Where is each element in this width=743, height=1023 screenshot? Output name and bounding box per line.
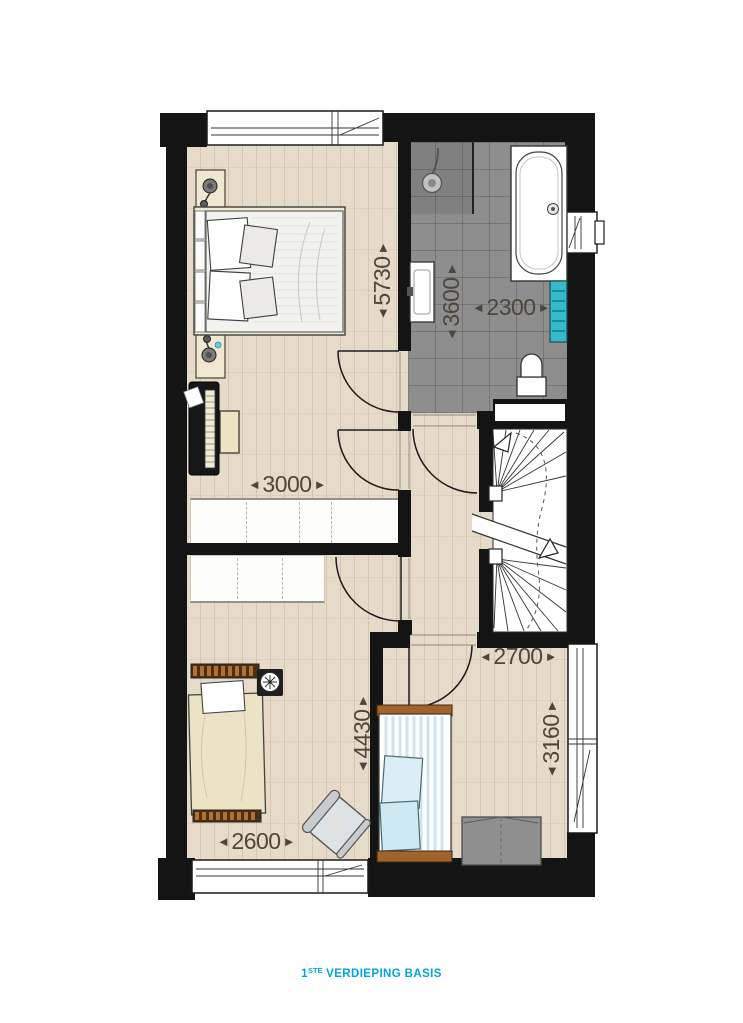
single-bed-bedroom2 <box>188 664 265 822</box>
door-swings <box>336 351 477 708</box>
door-master-to-landing <box>338 430 399 490</box>
wall-clock-icon <box>257 669 283 696</box>
double-bed-icon <box>194 207 345 335</box>
door-thresholds <box>400 352 476 645</box>
dimension-bedroom3-depth: ◄3160► <box>539 679 563 799</box>
window-master-top <box>207 111 383 145</box>
piano-icon <box>184 382 219 475</box>
storage-box-icon <box>462 817 541 865</box>
caption-number: 1 <box>301 968 308 980</box>
shower-icon <box>423 141 474 214</box>
plan-caption: 1STE VERDIEPING BASIS <box>0 966 743 980</box>
single-bed-bedroom3 <box>377 705 452 862</box>
window-bedroom2-bottom <box>192 860 368 893</box>
toilet-icon <box>517 354 546 396</box>
door-bedroom2 <box>336 557 401 621</box>
nightstand-top <box>196 170 225 212</box>
caption-text: VERDIEPING BASIS <box>326 968 442 980</box>
piano-bench-icon <box>220 411 239 453</box>
floorplan-canvas: ◄5730► ◄3600► ◄2300► ◄3000► ◄2700► ◄4430… <box>0 0 743 1023</box>
door-master-to-bathroom <box>338 351 399 412</box>
door-bathroom-to-landing <box>413 429 477 493</box>
washbasin-icon <box>407 262 434 322</box>
winder-staircase-icon <box>472 429 567 632</box>
window-bathroom-right <box>566 212 604 253</box>
dimension-bedroom3-width: ◄2700► <box>458 644 578 668</box>
window-bedroom3-right <box>568 644 597 833</box>
dimension-bedroom2-width: ◄2600► <box>196 829 316 853</box>
nightstand-bottom <box>196 332 225 378</box>
dimension-master-width: ◄3000► <box>227 472 347 496</box>
dimension-bathroom-width: ◄2300► <box>451 295 571 319</box>
dimension-master-depth: ◄5730► <box>370 221 394 341</box>
caption-ordinal: STE <box>308 966 323 975</box>
bathtub-icon <box>511 146 567 281</box>
plan-lineart <box>0 0 743 1023</box>
dimension-bedroom2-depth: ◄4430► <box>350 674 374 794</box>
